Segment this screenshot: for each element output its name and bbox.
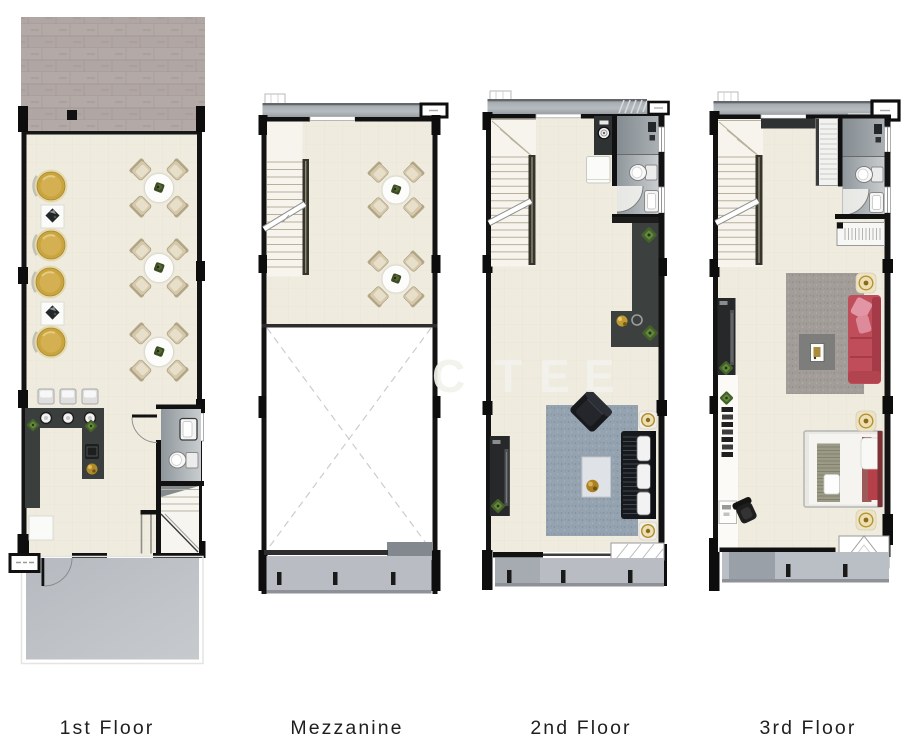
svg-text:3rd Floor: 3rd Floor	[760, 717, 857, 739]
svg-text:E: E	[584, 350, 615, 402]
svg-text:C: C	[432, 350, 465, 402]
svg-text:E: E	[539, 350, 570, 402]
svg-text:Mezzanine: Mezzanine	[290, 717, 403, 739]
svg-text:T: T	[494, 350, 522, 402]
svg-text:2nd Floor: 2nd Floor	[530, 717, 631, 739]
svg-text:1st Floor: 1st Floor	[60, 717, 155, 739]
